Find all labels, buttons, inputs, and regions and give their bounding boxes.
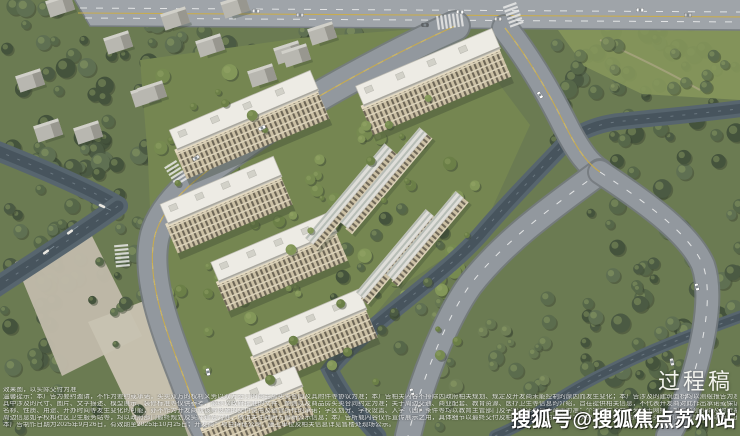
aerial-render: 效果图，以实际交付为准 温馨提示：本广告为要约邀请，不作为要约或承诺，买卖双方的…	[0, 0, 740, 436]
aerial-render-canvas	[0, 0, 740, 436]
